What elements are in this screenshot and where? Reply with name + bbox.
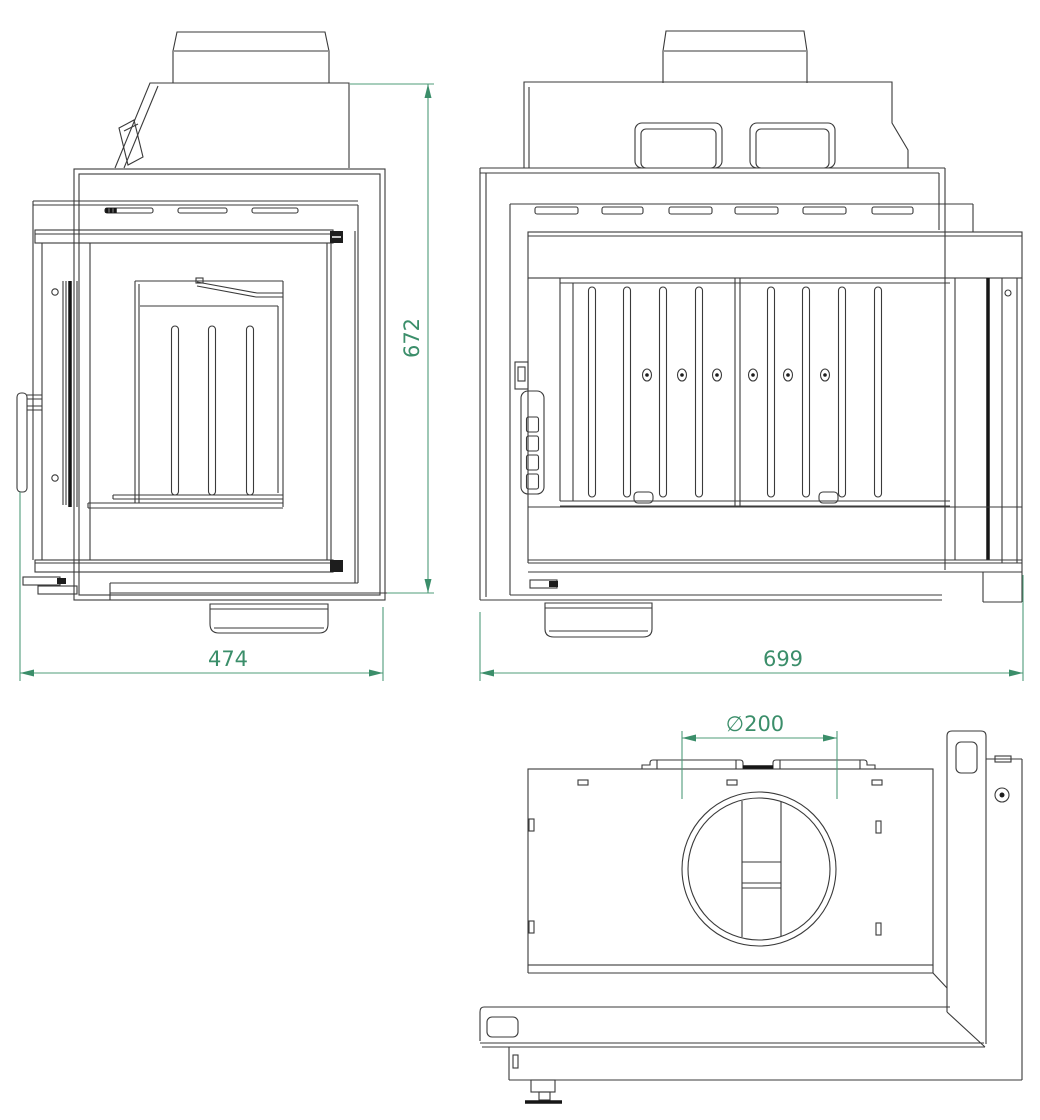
dim-label-height: 672 [400,318,424,358]
technical-drawing-page: 474 672 699 ∅200 [0,0,1040,1120]
fireplace-insert-drawing: 474 672 699 ∅200 [0,0,1040,1120]
dim-label-depth: 474 [208,647,248,671]
dim-label-width: 699 [763,647,803,671]
dim-label-flue-diameter: ∅200 [726,712,784,736]
